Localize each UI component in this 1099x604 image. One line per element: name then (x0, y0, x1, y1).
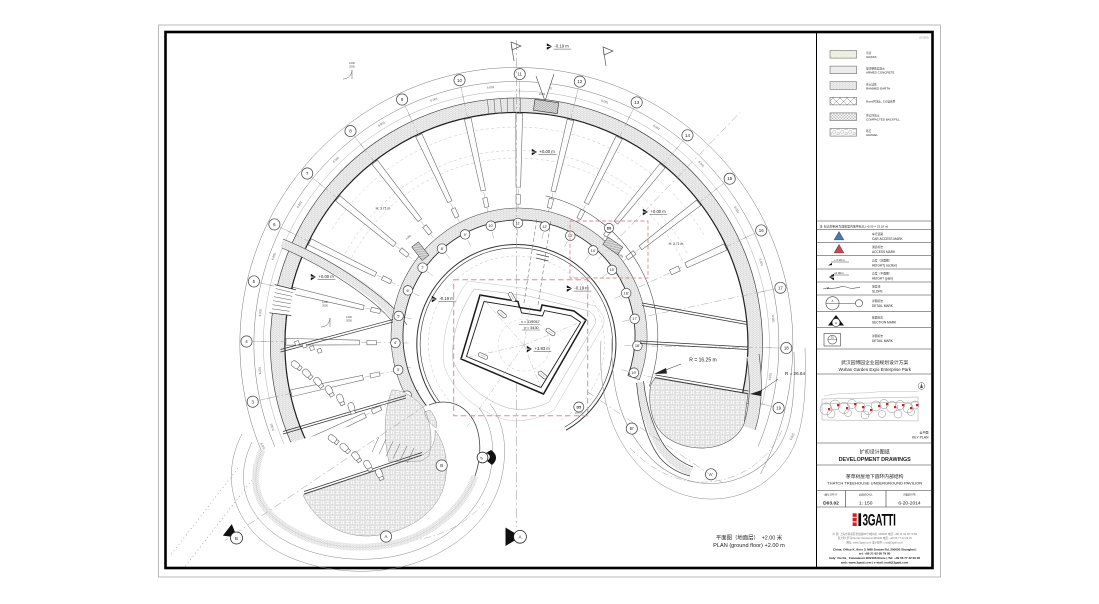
svg-text:4': 4' (394, 341, 397, 345)
svg-text:A: A (832, 299, 834, 303)
svg-text:HEIGHT (plan): HEIGHT (plan) (872, 276, 893, 280)
svg-text:HEIGHT( section): HEIGHT( section) (872, 263, 897, 267)
svg-text:10': 10' (488, 224, 493, 228)
svg-text:16': 16' (624, 291, 629, 295)
svg-text:截面标志: 截面标志 (872, 316, 883, 320)
svg-text:PLAN (ground floor) +2.00 m: PLAN (ground floor) +2.00 m (713, 543, 785, 549)
svg-text:18: 18 (784, 346, 789, 351)
svg-text:D03.02: D03.02 (823, 500, 839, 506)
svg-text:R = 16.25 m: R = 16.25 m (689, 358, 716, 364)
svg-text:比例(SCALL: 比例(SCALL (859, 492, 873, 496)
svg-text:D5: D5 (576, 405, 581, 409)
svg-text:B: B (235, 536, 238, 541)
svg-text:A: A (385, 534, 388, 539)
svg-text:-0.19 m: -0.19 m (555, 44, 570, 49)
svg-text:图号 DR N°: 图号 DR N° (825, 492, 838, 496)
svg-text:1: 150: 1: 150 (859, 500, 873, 506)
svg-text:注: 标高控制点为建筑室内地坪标高 (+0.00 = 23: 注: 标高控制点为建筑室内地坪标高 (+0.00 = 23.18 m) (820, 223, 889, 228)
svg-text:web: www.3gatti.com | e-mail:: web: www.3gatti.com | e-mail: mail@3gatt… (840, 560, 909, 564)
svg-text:12': 12' (542, 225, 547, 229)
svg-text:19': 19' (631, 371, 636, 375)
svg-text:平面图（地面层） +2.00 米: 平面图（地面层） +2.00 米 (716, 534, 783, 542)
svg-text:详图标志: 详图标志 (872, 334, 883, 338)
svg-text:GRASS: GRASS (866, 55, 877, 59)
svg-text:通道标志: 通道标志 (872, 245, 883, 249)
svg-text:18': 18' (635, 344, 640, 348)
svg-text:ARMED CONCRETE: ARMED CONCRETE (866, 71, 895, 75)
svg-text:6': 6' (406, 289, 409, 293)
svg-text:x = 119057: x = 119057 (521, 320, 540, 324)
svg-text:车行道路: 车行道路 (872, 232, 883, 236)
svg-text:B': B' (630, 426, 634, 431)
svg-text:RAMMED EARTH: RAMMED EARTH (866, 86, 890, 90)
svg-text:14: 14 (685, 133, 690, 138)
svg-text:茅草树屋地下圆环内部结构: 茅草树屋地下圆环内部结构 (846, 473, 904, 480)
svg-text:13: 13 (634, 100, 639, 105)
svg-text:+ 0.00 m: + 0.00 m (834, 258, 846, 262)
svg-text:(245-07): (245-07) (575, 413, 583, 415)
svg-text:LEGEND: LEGEND (919, 37, 929, 40)
svg-text:16: 16 (759, 228, 764, 233)
svg-text:-0.19 m: -0.19 m (440, 296, 455, 301)
svg-text:1200: 1200 (322, 300, 328, 304)
svg-text:R = 26.64: R = 26.64 (785, 371, 805, 376)
svg-text:+0.00m: +0.00m (834, 271, 844, 275)
svg-text:Mixed回填土, 330毫米厚: Mixed回填土, 330毫米厚 (866, 100, 896, 104)
svg-text:14': 14' (591, 249, 596, 253)
svg-text:DEVELOPMENT DRAWINGS: DEVELOPMENT DRAWINGS (839, 457, 912, 463)
svg-text:12: 12 (577, 79, 582, 84)
svg-text:中 国: 上海市黄浦区金仙路88号3楼K座, 200020: 中 国: 上海市黄浦区金仙路88号3楼K座, 200020 电话: +86 21… (832, 532, 917, 536)
svg-text:5': 5' (397, 314, 400, 318)
svg-text:6-20-2014: 6-20-2014 (898, 500, 921, 506)
svg-text:1200: 1200 (349, 61, 355, 65)
svg-text:6.001: 6.001 (771, 315, 776, 323)
svg-text:ACCESS MARK: ACCESS MARK (872, 250, 896, 254)
svg-text:CAR ACCESS MARK: CAR ACCESS MARK (872, 237, 904, 241)
svg-text:+0.00 m: +0.00 m (319, 274, 335, 279)
svg-text:17': 17' (632, 317, 637, 321)
svg-text:+3.83 m: +3.83 m (535, 346, 551, 351)
svg-text:1200: 1200 (346, 315, 352, 319)
svg-text:KEY PLAN: KEY PLAN (912, 436, 929, 440)
svg-text:高度（平面图）: 高度（平面图） (872, 272, 892, 276)
svg-text:2000: 2000 (349, 64, 355, 68)
svg-text:扩初设计图纸: 扩初设计图纸 (860, 449, 890, 456)
svg-text:COMPACTED BACKFILL: COMPACTED BACKFILL (866, 118, 900, 122)
svg-text:网址: www.3gatti.com 电子邮件: mail@: 网址: www.3gatti.com 电子邮件: mail@3gatti.com (846, 541, 903, 545)
svg-text:15': 15' (610, 268, 615, 272)
svg-text:SECTION MARK: SECTION MARK (872, 320, 897, 324)
svg-text:7': 7' (421, 266, 424, 270)
svg-text:GRAVEL: GRAVEL (866, 133, 878, 137)
svg-text:THATCH TREEHOUSE UNDERGROUND P: THATCH TREEHOUSE UNDERGROUND PAVILION (827, 481, 922, 486)
svg-text:坡度线: 坡度线 (872, 285, 881, 289)
svg-text:B: B (440, 463, 443, 468)
svg-text:武汉园博园企业园规划设计方案: 武汉园博园企业园规划设计方案 (841, 359, 908, 366)
svg-text:DETAIL MARK: DETAIL MARK (872, 304, 894, 308)
svg-text:SLOPE: SLOPE (872, 289, 883, 293)
svg-text:15: 15 (727, 176, 732, 181)
svg-text:2000: 2000 (346, 318, 352, 322)
svg-text:日期(DATE: 日期(DATE (903, 492, 916, 496)
svg-text:8': 8' (441, 247, 444, 251)
svg-text:tel: +86 21 62 08 79 80: tel: +86 21 62 08 79 80 (859, 552, 891, 556)
svg-text:+0.00 m: +0.00 m (651, 209, 667, 214)
svg-text:10: 10 (457, 78, 462, 83)
svg-text:6.001: 6.001 (487, 85, 495, 90)
svg-text:H: 3.71 m: H: 3.71 m (376, 207, 391, 211)
svg-text:11: 11 (517, 72, 522, 77)
svg-text:+0.00 m: +0.00 m (540, 149, 556, 154)
svg-text:意大利: 罗马Via del Clavatessl 3601: 意大利: 罗马Via del Clavatessl 360196 电话: +39… (838, 536, 913, 540)
svg-text:2000: 2000 (322, 303, 328, 307)
svg-text:DETAIL MARK: DETAIL MARK (872, 339, 894, 343)
svg-text:H: 3.71 m: H: 3.71 m (669, 242, 684, 246)
svg-text:-0.19 m: -0.19 m (575, 286, 590, 291)
svg-text:Wuhan Garden Expo Enterprise P: Wuhan Garden Expo Enterprise Park (838, 367, 911, 372)
svg-text:3': 3' (397, 368, 400, 372)
svg-text:3GATTI: 3GATTI (863, 511, 896, 529)
svg-text:详图标志: 详图标志 (872, 299, 883, 303)
svg-text:17: 17 (778, 285, 783, 290)
svg-text:全平面: 全平面 (919, 430, 928, 435)
svg-text:高度（剖面图）: 高度（剖面图） (872, 259, 892, 263)
svg-text:6.001: 6.001 (257, 366, 262, 374)
svg-text:D9: D9 (607, 227, 612, 231)
svg-text:y = 5430: y = 5430 (524, 326, 539, 330)
svg-text:19: 19 (776, 406, 781, 411)
svg-text:i=3%: i=3% (539, 92, 546, 96)
svg-text:A: A (835, 321, 837, 325)
svg-text:9': 9' (464, 233, 467, 237)
